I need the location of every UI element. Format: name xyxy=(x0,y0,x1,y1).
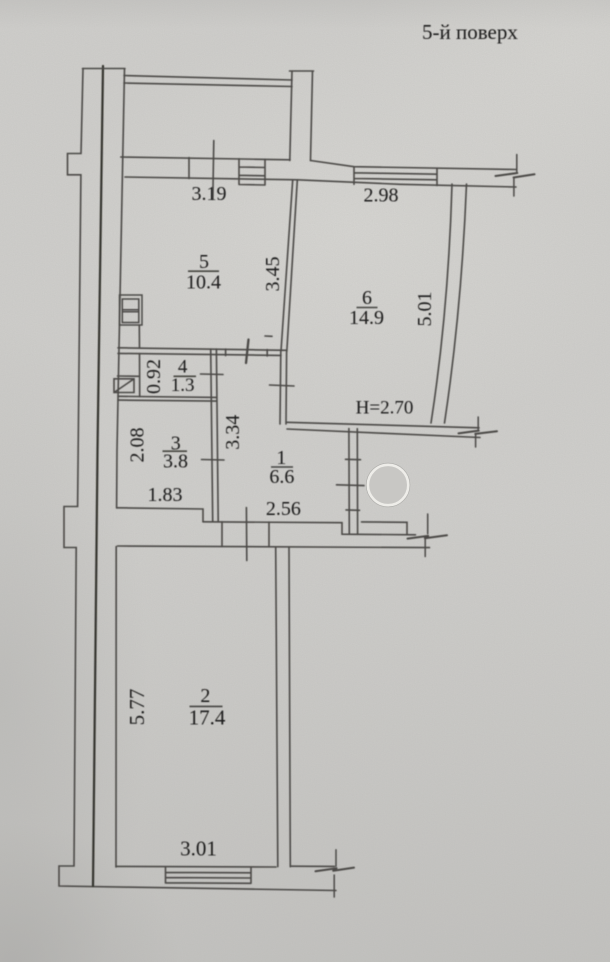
svg-text:0.92: 0.92 xyxy=(143,359,165,394)
svg-text:6.6: 6.6 xyxy=(269,466,294,488)
svg-text:6: 6 xyxy=(362,287,372,309)
svg-text:3.34: 3.34 xyxy=(222,415,244,450)
svg-text:3.8: 3.8 xyxy=(163,451,188,473)
svg-text:3.45: 3.45 xyxy=(262,257,284,292)
svg-text:1.83: 1.83 xyxy=(148,484,183,506)
svg-text:2.98: 2.98 xyxy=(364,185,399,207)
svg-text:17.4: 17.4 xyxy=(189,706,226,730)
svg-text:5.01: 5.01 xyxy=(414,292,436,327)
svg-text:1.3: 1.3 xyxy=(171,375,195,396)
svg-text:3.01: 3.01 xyxy=(180,837,217,861)
svg-text:14.9: 14.9 xyxy=(349,307,384,329)
svg-text:5-й поверх: 5-й поверх xyxy=(422,20,518,44)
svg-text:2: 2 xyxy=(200,685,210,707)
svg-text:3.19: 3.19 xyxy=(192,183,227,205)
svg-text:5.77: 5.77 xyxy=(125,689,149,726)
svg-text:H=2.70: H=2.70 xyxy=(356,398,414,419)
svg-text:2.56: 2.56 xyxy=(266,498,301,520)
svg-text:10.4: 10.4 xyxy=(186,272,221,294)
svg-text:5: 5 xyxy=(199,251,209,273)
svg-text:2.08: 2.08 xyxy=(126,428,148,463)
